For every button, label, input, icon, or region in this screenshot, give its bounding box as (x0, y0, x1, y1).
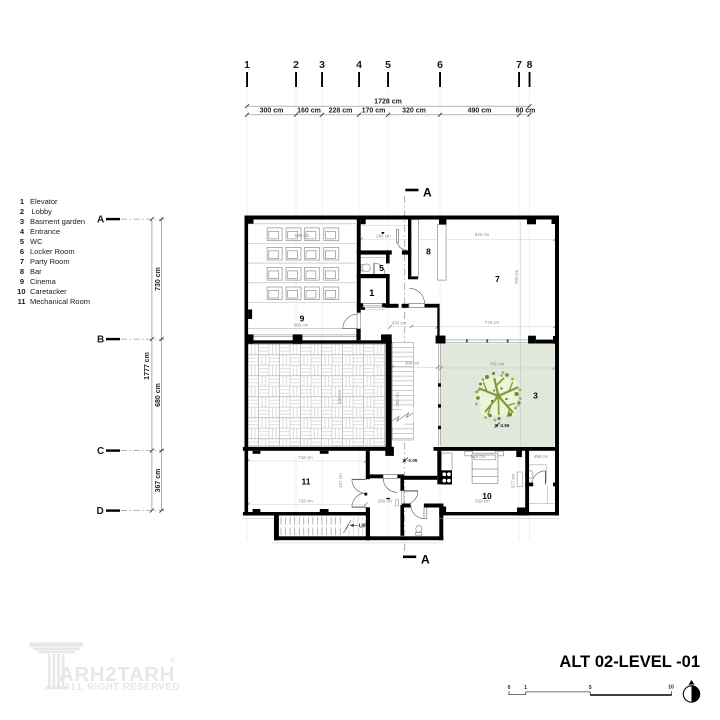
svg-text:7: 7 (20, 257, 24, 266)
svg-text:Mechanical Room: Mechanical Room (30, 297, 90, 306)
svg-text:ALL RIGHT RESERVED: ALL RIGHT RESERVED (64, 682, 180, 693)
svg-text:791 cm: 791 cm (490, 362, 505, 367)
svg-text:498 cm: 498 cm (534, 454, 549, 459)
svg-text:-0.05: -0.05 (407, 458, 418, 463)
svg-text:10: 10 (668, 685, 674, 691)
svg-text:1777 cm: 1777 cm (144, 352, 151, 380)
svg-text:9: 9 (300, 314, 305, 324)
svg-text:6: 6 (20, 247, 24, 256)
svg-text:760 cm: 760 cm (514, 269, 519, 284)
svg-text:367 cm: 367 cm (155, 469, 162, 493)
svg-text:-3.65: -3.65 (499, 423, 510, 428)
svg-text:7: 7 (495, 274, 500, 284)
svg-text:5: 5 (589, 685, 592, 691)
svg-text:5: 5 (385, 59, 391, 71)
svg-text:490 cm: 490 cm (468, 107, 492, 114)
svg-text:718 cm: 718 cm (298, 498, 313, 503)
svg-text:Basment garden: Basment garden (30, 217, 85, 226)
svg-text:Entrance: Entrance (30, 227, 60, 236)
svg-text:11: 11 (18, 297, 26, 306)
svg-text:WC: WC (30, 237, 43, 246)
svg-text:377 cm: 377 cm (511, 473, 516, 488)
svg-text:C: C (97, 446, 104, 457)
svg-text:5: 5 (379, 263, 384, 273)
svg-text:0: 0 (508, 685, 511, 691)
svg-text:10: 10 (17, 287, 25, 296)
svg-text:Cinema: Cinema (30, 277, 57, 286)
svg-text:ALT 02-LEVEL -01: ALT 02-LEVEL -01 (559, 653, 700, 671)
svg-text:10: 10 (482, 491, 492, 501)
svg-text:228 cm: 228 cm (329, 107, 353, 114)
svg-text:1: 1 (524, 685, 527, 691)
svg-text:1: 1 (369, 288, 375, 299)
svg-text:779 cm: 779 cm (485, 320, 500, 325)
svg-text:320 cm: 320 cm (402, 107, 426, 114)
svg-text:288 cm: 288 cm (378, 499, 393, 504)
svg-text:A: A (423, 186, 432, 200)
svg-text:1: 1 (244, 59, 250, 71)
svg-text:360 cm: 360 cm (395, 392, 400, 407)
svg-text:160 cm: 160 cm (297, 107, 321, 114)
svg-text:1: 1 (20, 197, 24, 206)
svg-text:680 cm: 680 cm (155, 383, 162, 407)
svg-text:300 cm: 300 cm (260, 107, 284, 114)
svg-text:5: 5 (20, 237, 24, 246)
svg-text:11: 11 (302, 477, 311, 487)
svg-text:518 cm: 518 cm (471, 454, 486, 459)
svg-text:6: 6 (437, 59, 443, 71)
svg-text:317 cm: 317 cm (338, 473, 343, 488)
svg-text:7: 7 (516, 59, 522, 71)
svg-text:170 cm: 170 cm (362, 107, 386, 114)
svg-text:Locker Room: Locker Room (30, 247, 75, 256)
svg-text:2: 2 (20, 207, 24, 216)
svg-text:8: 8 (426, 247, 431, 257)
svg-text:2: 2 (293, 59, 299, 71)
svg-text:698 cm: 698 cm (295, 233, 310, 238)
svg-text:8: 8 (20, 267, 24, 276)
svg-text:Party Room: Party Room (30, 257, 70, 266)
svg-text:3: 3 (319, 59, 325, 71)
svg-text:A: A (421, 553, 430, 567)
svg-text:8: 8 (527, 59, 533, 71)
svg-text:470 cm: 470 cm (392, 320, 407, 325)
svg-text:3: 3 (20, 217, 24, 226)
svg-text:948 cm: 948 cm (475, 232, 490, 237)
svg-text:4: 4 (356, 59, 362, 71)
svg-text:Caretacker: Caretacker (30, 287, 67, 296)
svg-text:330 cm: 330 cm (337, 389, 342, 404)
svg-text:266 cm: 266 cm (376, 233, 391, 238)
svg-text:A: A (97, 215, 104, 226)
svg-text:9: 9 (20, 277, 24, 286)
svg-text:®: ® (170, 656, 176, 665)
svg-text:D: D (97, 506, 104, 517)
svg-text:730 cm: 730 cm (155, 267, 162, 291)
svg-text:718 cm: 718 cm (298, 455, 313, 460)
svg-text:60 cm: 60 cm (516, 107, 536, 114)
svg-text:1728 cm: 1728 cm (374, 99, 402, 106)
svg-text:Bar: Bar (30, 267, 42, 276)
svg-text:UP: UP (359, 523, 367, 529)
svg-text:3: 3 (533, 391, 538, 401)
svg-text:Lobby: Lobby (32, 207, 53, 216)
svg-text:Elevator: Elevator (30, 197, 58, 206)
svg-text:388 cm: 388 cm (405, 361, 420, 366)
svg-text:B: B (97, 335, 104, 346)
